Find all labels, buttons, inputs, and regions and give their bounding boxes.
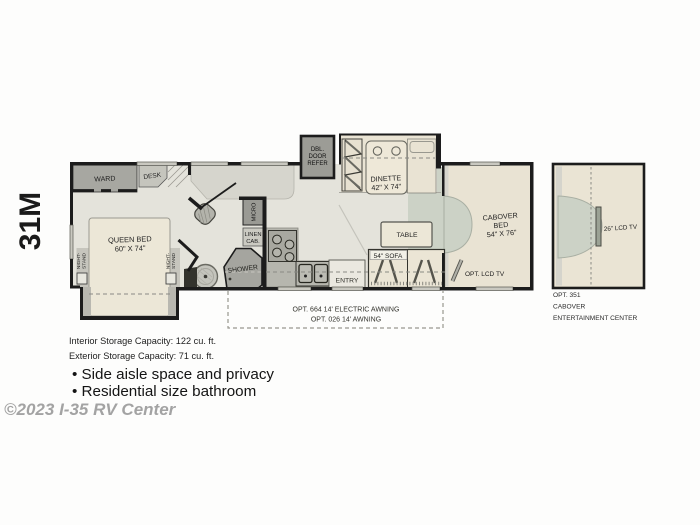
- svg-text:STAND: STAND: [171, 253, 177, 269]
- svg-text:WARD: WARD: [94, 175, 115, 183]
- svg-text:STAND: STAND: [82, 253, 88, 269]
- svg-text:©2023 I-35 RV Center: ©2023 I-35 RV Center: [4, 400, 177, 419]
- svg-text:NIGHT-: NIGHT-: [76, 252, 82, 269]
- svg-text:Exterior Storage Capacity: 71: Exterior Storage Capacity: 71 cu. ft.: [69, 351, 214, 361]
- svg-text:LINEN: LINEN: [244, 232, 261, 238]
- svg-text:NIGHT-: NIGHT-: [166, 252, 172, 269]
- svg-text:REFER: REFER: [307, 161, 328, 167]
- svg-text:DBL.: DBL.: [311, 147, 325, 153]
- svg-text:60" X 74": 60" X 74": [115, 243, 146, 253]
- svg-text:CAB.: CAB.: [246, 239, 260, 245]
- svg-text:• Residential size bathroom: • Residential size bathroom: [72, 383, 256, 400]
- svg-text:OPT. 026 14' AWNING: OPT. 026 14' AWNING: [311, 317, 381, 324]
- svg-text:• Side aisle space and privacy: • Side aisle space and privacy: [72, 366, 274, 383]
- svg-text:OPT. 351: OPT. 351: [553, 292, 581, 299]
- svg-text:OPT. LCD TV: OPT. LCD TV: [465, 271, 505, 278]
- svg-text:CABOVER: CABOVER: [553, 304, 585, 311]
- svg-text:Interior Storage Capacity: 12: Interior Storage Capacity: 122 cu. ft.: [69, 336, 216, 346]
- svg-text:31M: 31M: [14, 192, 47, 250]
- svg-text:54" SOFA: 54" SOFA: [374, 253, 403, 260]
- svg-text:ENTRY: ENTRY: [336, 278, 359, 285]
- svg-text:OPT. 664 14' ELECTRIC AWNING: OPT. 664 14' ELECTRIC AWNING: [293, 307, 400, 314]
- svg-text:DOOR: DOOR: [309, 154, 328, 160]
- svg-text:ENTERTAINMENT CENTER: ENTERTAINMENT CENTER: [553, 315, 637, 322]
- svg-text:42" X 74": 42" X 74": [371, 182, 402, 193]
- svg-text:TABLE: TABLE: [396, 232, 417, 239]
- svg-text:MICRO: MICRO: [252, 202, 258, 221]
